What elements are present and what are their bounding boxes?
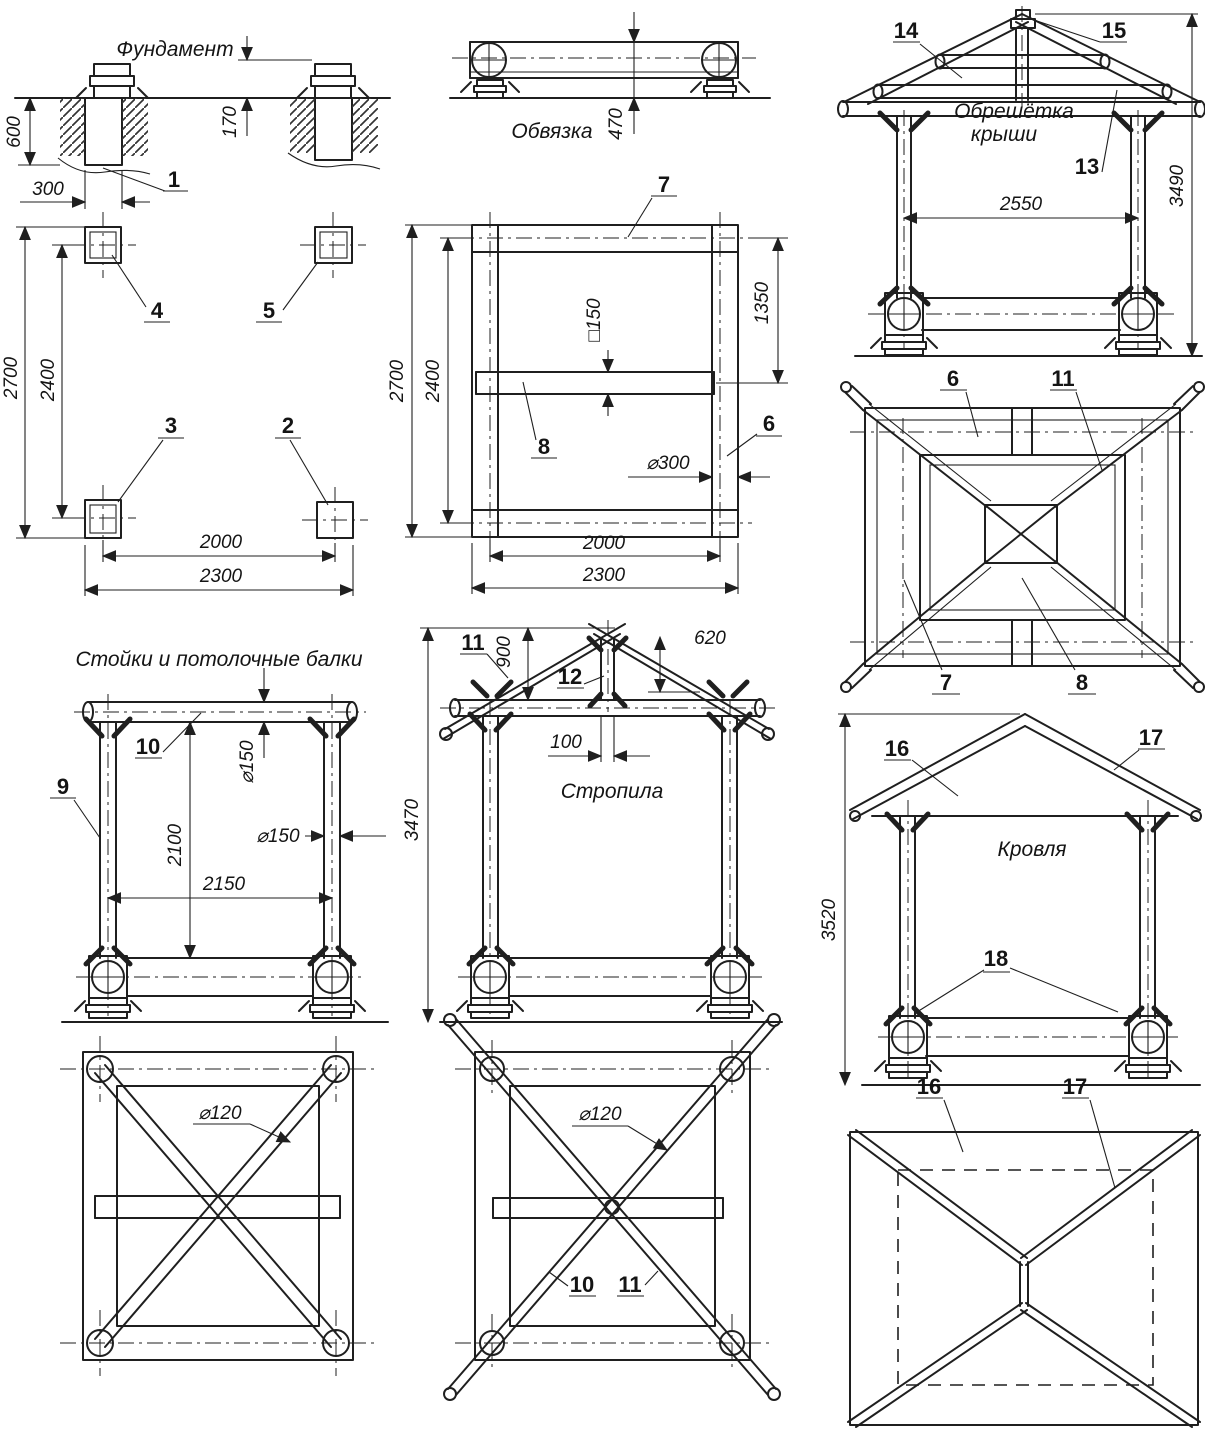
callout-18: 18	[984, 946, 1008, 971]
drawing-canvas: Фундамент 600 300 170 1 2700 24	[0, 0, 1205, 1432]
callout-10: 10	[570, 1272, 594, 1297]
view-lathing-plan: 6 11 7 8	[841, 366, 1204, 695]
view-posts-plan: ⌀120	[60, 1036, 376, 1376]
dim-height: 3490	[1167, 164, 1188, 207]
view-title: Стойки и потолочные балки	[75, 648, 362, 671]
dim-cap-height: 170	[220, 106, 241, 138]
callout-13: 13	[1075, 154, 1099, 179]
dim-center-x: 2000	[582, 533, 626, 554]
dim-depth: 600	[4, 116, 25, 148]
callout-6: 6	[763, 411, 775, 436]
callout-11: 11	[618, 1272, 641, 1297]
dim-beam-section: □150	[584, 298, 605, 342]
view-title-line2: крыши	[971, 123, 1037, 146]
callout-8: 8	[1076, 670, 1088, 695]
callout-16: 16	[917, 1074, 941, 1099]
view-foundation-section: Фундамент 600 300 170 1	[4, 36, 390, 209]
view-strapping-side: 470 Обвязка	[450, 12, 770, 143]
dim-outer-y: 2700	[387, 359, 408, 403]
callout-7: 7	[658, 172, 670, 197]
dim-total-height: 3520	[819, 898, 840, 941]
view-title-line1: Обрешётка	[954, 100, 1074, 123]
callout-1: 1	[168, 167, 180, 192]
dim-width: 300	[32, 179, 64, 200]
view-rafters-plan: ⌀120 10 11	[444, 1014, 780, 1400]
view-posts-elevation: Стойки и потолочные балки ⌀150 ⌀150 2100…	[50, 648, 388, 1022]
callout-5: 5	[263, 298, 275, 323]
callout-10: 10	[136, 734, 160, 759]
dim-brace-dia: ⌀120	[198, 1103, 242, 1124]
callout-16: 16	[885, 736, 909, 761]
dim-center-x: 2000	[199, 532, 243, 553]
view-roofing-elevation: Кровля 3520 16 17 18	[819, 714, 1201, 1085]
callout-11: 11	[1051, 366, 1074, 391]
callout-4: 4	[151, 298, 164, 323]
dim-center-y: 2400	[423, 359, 444, 403]
callout-14: 14	[894, 18, 919, 43]
view-roofing-plan: 16 17	[848, 1074, 1200, 1427]
callout-11: 11	[461, 630, 484, 655]
callout-8: 8	[538, 434, 550, 459]
callout-17: 17	[1139, 725, 1163, 750]
view-title: Фундамент	[116, 38, 233, 61]
callout-15: 15	[1102, 18, 1126, 43]
dim-outer-x: 2300	[199, 566, 243, 587]
callout-12: 12	[558, 664, 582, 689]
view-title: Стропила	[561, 780, 664, 803]
callout-9: 9	[57, 774, 69, 799]
callout-2: 2	[282, 413, 294, 438]
dim-span: 2550	[999, 194, 1043, 215]
view-title: Кровля	[997, 838, 1066, 861]
view-title: Обвязка	[511, 120, 592, 143]
dim-height: 470	[606, 108, 627, 140]
gazebo-construction-drawing: Фундамент 600 300 170 1 2700 24	[0, 0, 1205, 1432]
dim-beam-offset: 1350	[752, 281, 773, 324]
dim-kingpost: 100	[550, 732, 582, 753]
dim-brace-dia: ⌀120	[578, 1104, 622, 1125]
dim-center-y: 2400	[38, 358, 59, 402]
dim-span: 2150	[202, 874, 246, 895]
dim-total-height: 3470	[402, 798, 423, 841]
dim-outer-y: 2700	[1, 356, 22, 400]
view-rafters-elevation: Стропила 900 620 100 3470 11 12	[402, 620, 782, 1022]
view-foundation-plan: 2700 2400 2000 2300 4 5 3 2	[1, 212, 368, 596]
view-lathing-elevation: Обрешётка крыши 14 15 13 2550 3490	[838, 6, 1205, 356]
callout-3: 3	[165, 413, 177, 438]
callout-17: 17	[1063, 1074, 1087, 1099]
view-strapping-plan: □150 ⌀300 2700 2400 1350 2000 2300 7 8 6	[387, 172, 788, 594]
dim-height: 2100	[165, 823, 186, 867]
dim-overhang: 620	[694, 628, 726, 649]
callout-6: 6	[947, 366, 959, 391]
callout-7: 7	[940, 670, 952, 695]
dim-outer-x: 2300	[582, 565, 626, 586]
dim-beam-dia: ⌀150	[237, 740, 258, 784]
dim-post-dia: ⌀150	[256, 826, 300, 847]
dim-rise: 900	[494, 636, 515, 668]
dim-log-dia: ⌀300	[646, 453, 690, 474]
